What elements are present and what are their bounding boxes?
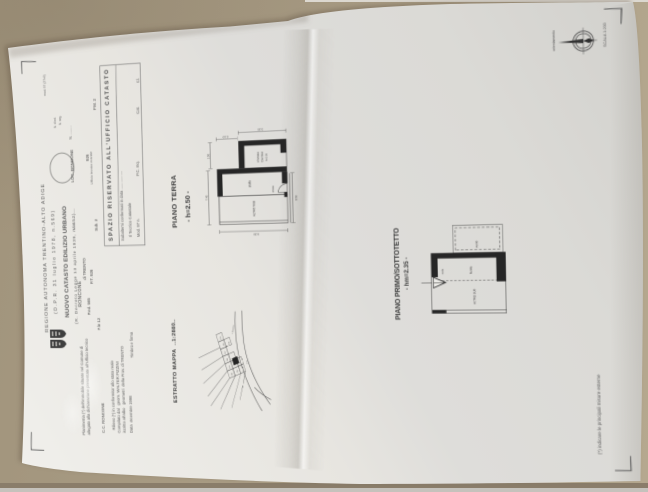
svg-text:8.30: 8.30 bbox=[253, 232, 259, 236]
svg-text:1.50: 1.50 bbox=[206, 153, 211, 159]
svg-text:6.10: 6.10 bbox=[222, 135, 228, 140]
svg-text:184: 184 bbox=[229, 365, 231, 368]
svg-text:3.35: 3.35 bbox=[257, 127, 263, 132]
svg-text:179: 179 bbox=[246, 360, 248, 363]
svg-text:193: 193 bbox=[220, 336, 222, 339]
svg-text:183: 183 bbox=[231, 372, 233, 375]
svg-text:191: 191 bbox=[228, 341, 230, 344]
svg-text:190: 190 bbox=[223, 343, 225, 346]
svg-text:scala: scala bbox=[442, 268, 445, 275]
svg-text:ALTRO SUB: ALTRO SUB bbox=[473, 288, 477, 304]
svg-text:fienile: fienile bbox=[468, 265, 473, 273]
svg-text:186: 186 bbox=[227, 358, 229, 361]
svg-text:vuoto: vuoto bbox=[474, 240, 479, 248]
svg-text:v. bondone: v. bondone bbox=[232, 325, 235, 334]
svg-text:182: 182 bbox=[237, 369, 239, 372]
svg-text:stalla: stalla bbox=[248, 180, 253, 188]
svg-text:h=2.20: h=2.20 bbox=[266, 153, 268, 161]
svg-text:CANTINA: CANTINA bbox=[261, 151, 265, 162]
svg-text:7.40: 7.40 bbox=[205, 195, 210, 201]
svg-text:187: 187 bbox=[224, 351, 226, 354]
svg-text:LEGNAIA: LEGNAIA bbox=[257, 151, 261, 162]
svg-text:ALTRO SUB: ALTRO SUB bbox=[252, 200, 257, 216]
svg-text:entrata: entrata bbox=[272, 185, 276, 193]
